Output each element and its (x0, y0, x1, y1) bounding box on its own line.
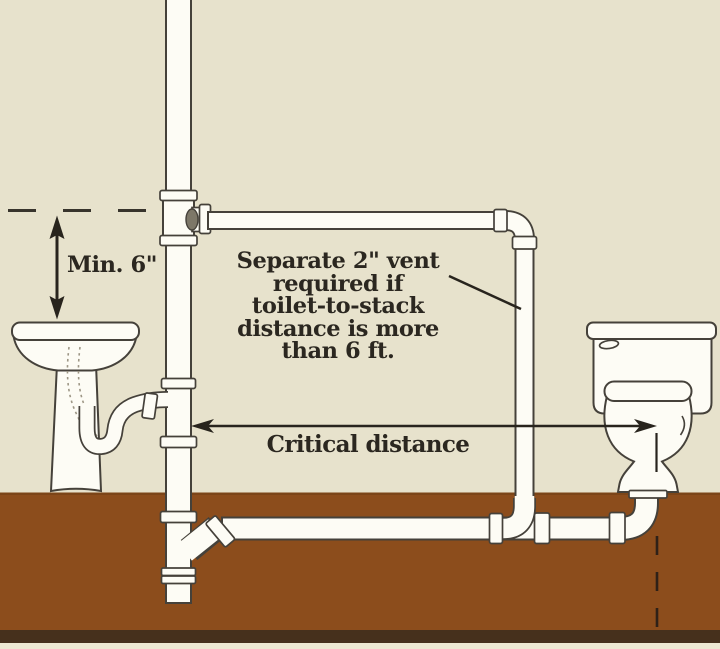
vent-note-line-5: than 6 ft. (222, 340, 454, 363)
vent-note-label: Separate 2" vent required if toilet-to-s… (222, 250, 454, 363)
stack-sink-tee-hub-top (162, 379, 196, 389)
drain-coupling (610, 513, 626, 544)
bottom-strip (0, 643, 720, 649)
vent-note-line-4: distance is more (222, 318, 454, 341)
min-height-label: Min. 6" (60, 252, 164, 278)
critical-distance-label: Critical distance (252, 431, 484, 458)
drain-pipe-under-vent (222, 518, 618, 540)
drain-tee-hub-left (490, 514, 503, 544)
tee-socket-shadow (186, 209, 198, 230)
floor-edge-line (0, 493, 720, 496)
stack-sink-tee-hub-bottom (161, 437, 197, 448)
vent-note-line-2: required if (222, 273, 454, 296)
trap-coupling (142, 393, 158, 419)
vent-note-line-1: Separate 2" vent (222, 250, 454, 273)
sink-rim (12, 323, 139, 341)
toilet-flange (629, 491, 667, 499)
toilet-seat-rim (605, 382, 692, 402)
vent-note-line-3: toilet-to-stack (222, 295, 454, 318)
vent-elbow-hub (494, 210, 507, 232)
plumbing-diagram: Min. 6" Separate 2" vent required if toi… (0, 0, 720, 649)
vent-coupling (513, 237, 537, 250)
toilet-tank-lid (587, 323, 716, 340)
soil-dark-band (0, 630, 720, 643)
drain-tee-hub-right (535, 513, 550, 544)
stack-wye-hub (161, 512, 197, 523)
